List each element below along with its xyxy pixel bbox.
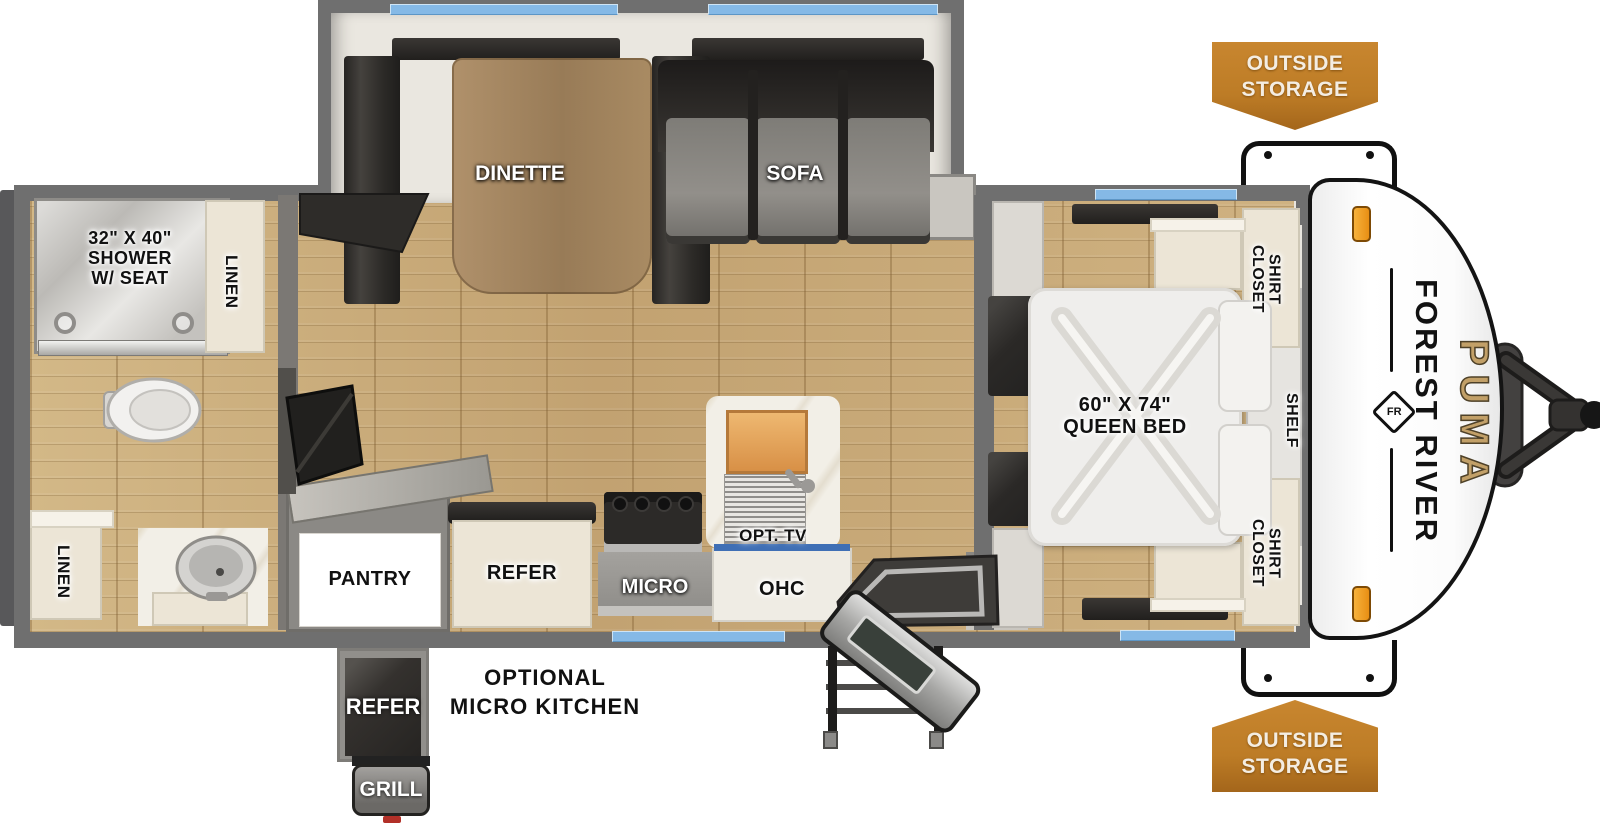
cap-accent-line-bottom bbox=[1390, 448, 1393, 552]
optional-micro-kitchen-label: OPTIONAL MICRO KITCHEN bbox=[432, 664, 658, 722]
bedroom-cabinet-top bbox=[992, 201, 1044, 301]
window-bedroom-top bbox=[1095, 189, 1237, 200]
nightstand-lid-top bbox=[1150, 218, 1246, 232]
bedroom-partition-wall bbox=[974, 195, 994, 630]
sofa-seat bbox=[666, 118, 750, 244]
optional-grill: GRILL bbox=[352, 764, 430, 816]
nightstand-bottom bbox=[1154, 542, 1242, 602]
queen-bed-label: 60" X 74" QUEEN BED bbox=[1040, 394, 1210, 439]
rear-bumper bbox=[0, 190, 15, 626]
grill-handle bbox=[383, 816, 401, 823]
marker-light-top bbox=[1352, 206, 1371, 242]
sofa-armrest-divider bbox=[838, 70, 848, 240]
sofa-seat bbox=[846, 118, 930, 244]
pantry-label: PANTRY bbox=[300, 568, 440, 590]
shower-door-handle bbox=[54, 312, 76, 334]
shower-label: 32" X 40" SHOWER W/ SEAT bbox=[50, 228, 210, 288]
entry-steps bbox=[824, 646, 944, 748]
nightstand-lid-bottom bbox=[1150, 598, 1246, 612]
floorplan-canvas: { "brand": { "manufacturer": "FOREST RIV… bbox=[0, 0, 1600, 826]
hitch-ball-socket bbox=[1580, 401, 1600, 429]
storage-latch bbox=[1264, 151, 1272, 159]
bath-step-stool bbox=[152, 592, 248, 626]
brand-puma: PUMA bbox=[1450, 326, 1496, 506]
window-slideout-right bbox=[708, 4, 938, 15]
storage-compartment-bottom bbox=[1241, 640, 1397, 697]
window-slideout-left bbox=[390, 4, 618, 15]
dinette-bench-left bbox=[344, 56, 400, 304]
window-kitchen-bottom bbox=[612, 631, 785, 642]
storage-latch bbox=[1366, 674, 1374, 682]
cap-accent-line-top bbox=[1390, 268, 1393, 372]
sofa-window-valance bbox=[692, 38, 924, 60]
shelf-label: SHELF bbox=[1282, 372, 1299, 468]
optional-refer: REFER bbox=[345, 658, 421, 756]
brand-forest-river: FOREST RIVER bbox=[1404, 252, 1444, 572]
sofa-armrest-divider bbox=[748, 70, 758, 240]
opt-tv-label: OPT. TV bbox=[706, 526, 840, 545]
linen-bottom-label: LINEN bbox=[54, 528, 72, 616]
ohc-accent-trim bbox=[714, 544, 850, 551]
sofa-label: SOFA bbox=[745, 162, 845, 186]
ohc-label: OHC bbox=[712, 578, 852, 600]
tongue-hitch bbox=[1488, 344, 1600, 486]
refer-label: REFER bbox=[452, 562, 592, 584]
tv-wall-mount bbox=[278, 368, 296, 494]
linen-cabinet-lid bbox=[30, 510, 114, 528]
storage-latch bbox=[1366, 151, 1374, 159]
window-bedroom-bottom bbox=[1120, 630, 1235, 641]
cutting-board bbox=[726, 410, 808, 474]
marker-light-bottom bbox=[1352, 586, 1371, 622]
shirt-closet-bottom-label: SHIRT CLOSET bbox=[1248, 488, 1282, 618]
outside-storage-badge-top: OUTSIDE STORAGE bbox=[1212, 42, 1378, 130]
dinette-label: DINETTE bbox=[440, 162, 600, 186]
stove-range bbox=[604, 492, 702, 556]
dinette-window-valance bbox=[392, 38, 620, 60]
forest-river-logo-monogram: FR bbox=[1387, 406, 1402, 418]
nightstand-top bbox=[1154, 228, 1242, 290]
shirt-closet-top-label: SHIRT CLOSET bbox=[1248, 214, 1282, 344]
hitch-coupler bbox=[1550, 400, 1588, 430]
linen-top-label: LINEN bbox=[222, 232, 240, 332]
micro-label: MICRO bbox=[598, 576, 712, 599]
outside-storage-badge-bottom: OUTSIDE STORAGE bbox=[1212, 700, 1378, 792]
shower-glass-door bbox=[38, 340, 228, 356]
storage-latch bbox=[1264, 674, 1272, 682]
shower-door-handle bbox=[172, 312, 194, 334]
